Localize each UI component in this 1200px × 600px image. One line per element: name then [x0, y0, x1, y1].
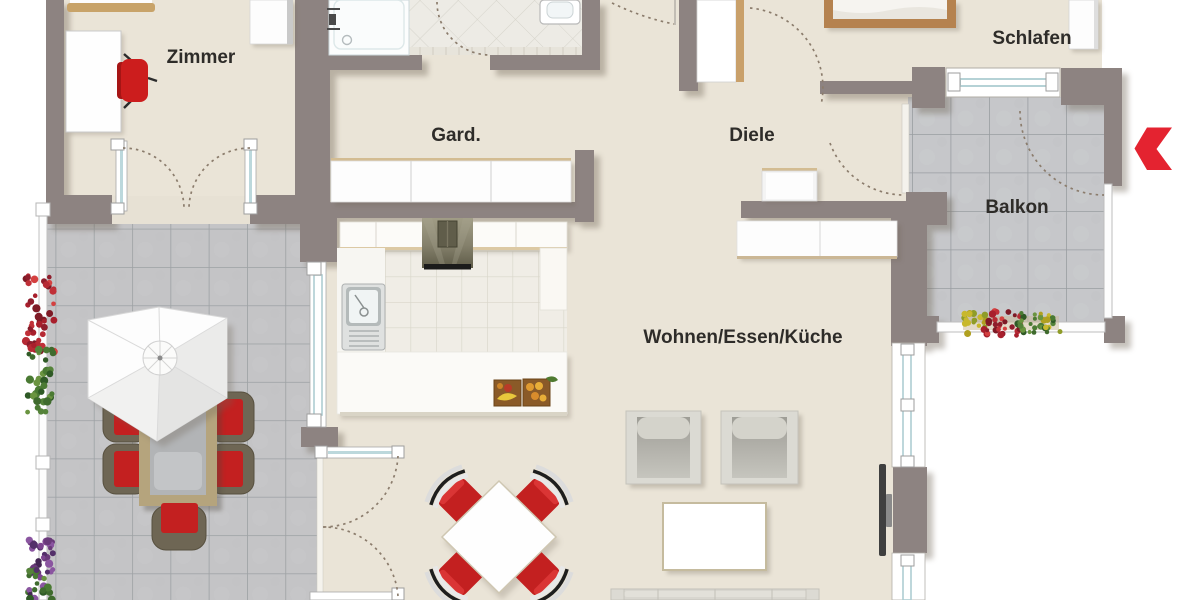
svg-text:Zimmer: Zimmer: [167, 47, 236, 68]
svg-text:Wohnen/Essen/Küche: Wohnen/Essen/Küche: [643, 327, 842, 348]
svg-text:Diele: Diele: [729, 125, 774, 146]
svg-text:Balkon: Balkon: [985, 197, 1048, 218]
svg-text:Gard.: Gard.: [431, 125, 481, 146]
svg-text:Schlafen: Schlafen: [992, 28, 1071, 49]
